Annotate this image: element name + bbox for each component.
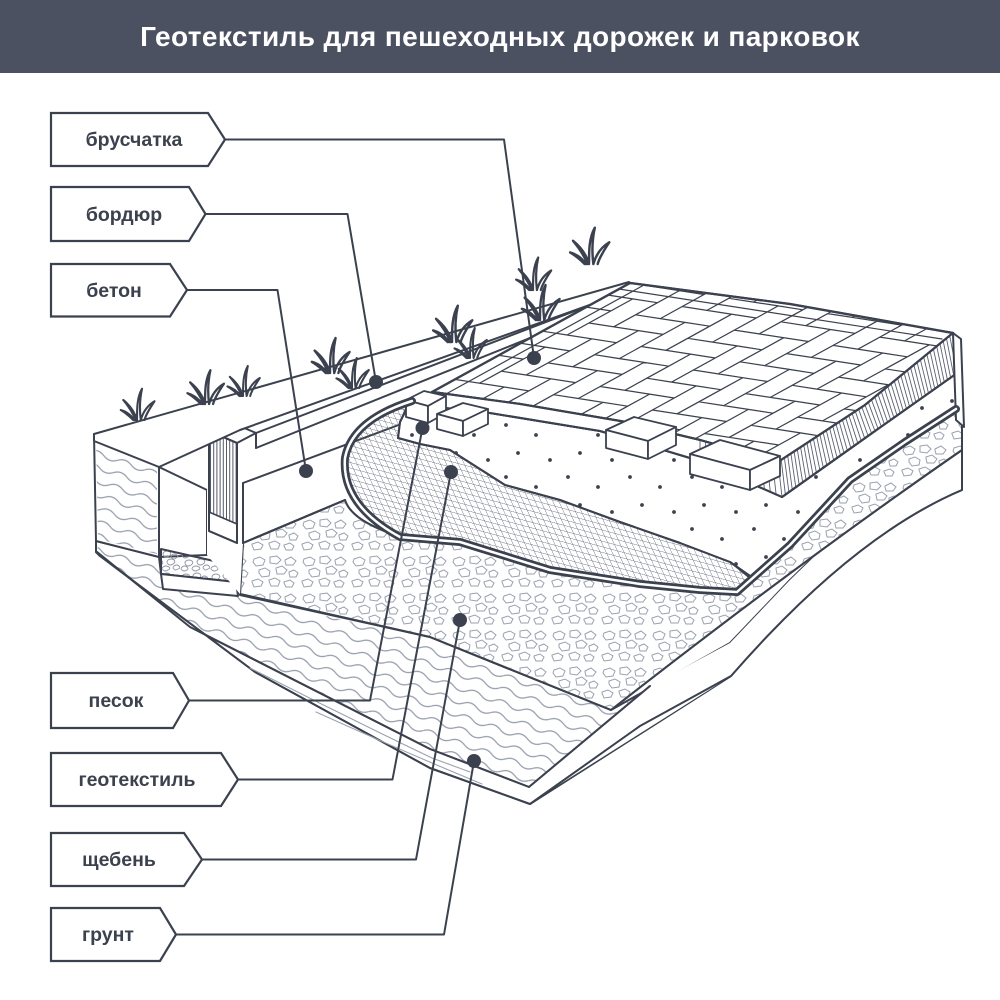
svg-text:грунт: грунт	[82, 924, 134, 946]
svg-text:геотекстиль: геотекстиль	[78, 769, 195, 791]
svg-text:брусчатка: брусчатка	[86, 129, 183, 151]
svg-text:песок: песок	[89, 690, 144, 712]
svg-text:бетон: бетон	[86, 280, 142, 302]
svg-text:бордюр: бордюр	[86, 204, 162, 226]
svg-text:щебень: щебень	[82, 849, 156, 871]
